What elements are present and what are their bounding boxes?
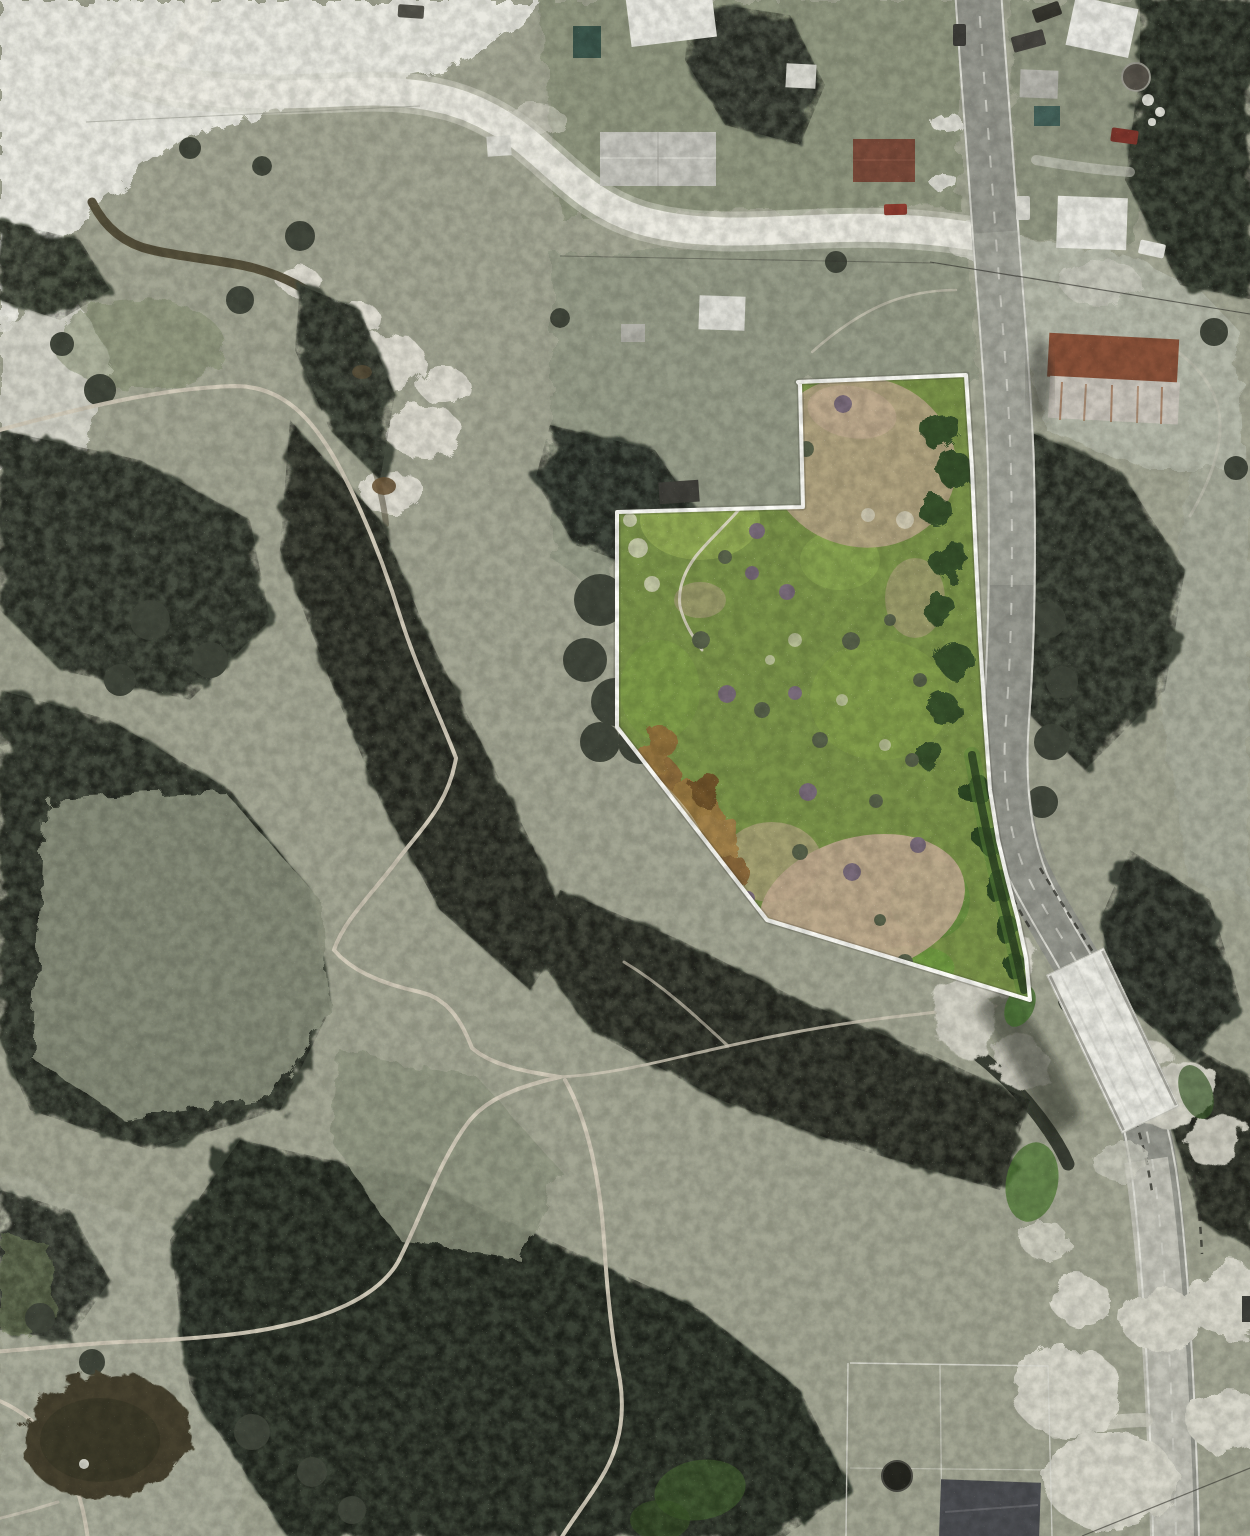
grain-overlay xyxy=(0,0,1250,1536)
aerial-photo xyxy=(0,0,1250,1536)
aerial-photo-stage xyxy=(0,0,1250,1536)
